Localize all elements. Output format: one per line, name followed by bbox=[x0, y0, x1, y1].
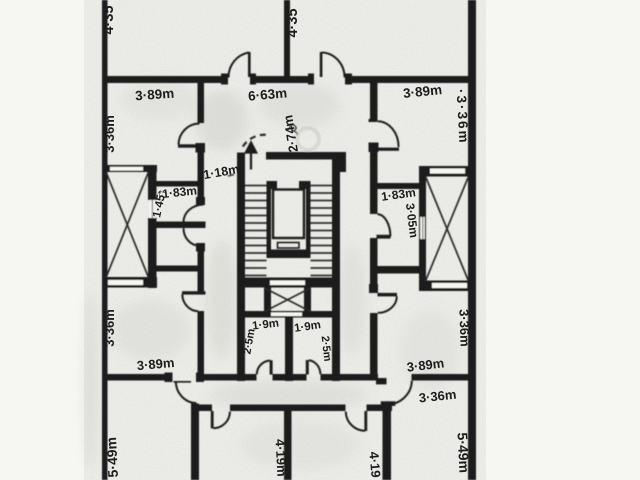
svg-text:4·19m: 4·19m bbox=[273, 439, 290, 477]
svg-text:3·36m: 3·36m bbox=[456, 309, 472, 347]
svg-text:4·19: 4·19 bbox=[366, 451, 383, 478]
svg-text:3·36m: 3·36m bbox=[102, 309, 117, 347]
svg-text:4·35: 4·35 bbox=[101, 5, 117, 34]
svg-text:5·49m: 5·49m bbox=[103, 437, 121, 478]
svg-text:·3·36m: ·3·36m bbox=[454, 89, 472, 145]
svg-text:4·35: 4·35 bbox=[285, 8, 301, 37]
svg-text:5·49m: 5·49m bbox=[454, 432, 472, 473]
svg-text:3·89m: 3·89m bbox=[135, 86, 175, 104]
svg-text:3·36m: 3·36m bbox=[102, 115, 117, 153]
